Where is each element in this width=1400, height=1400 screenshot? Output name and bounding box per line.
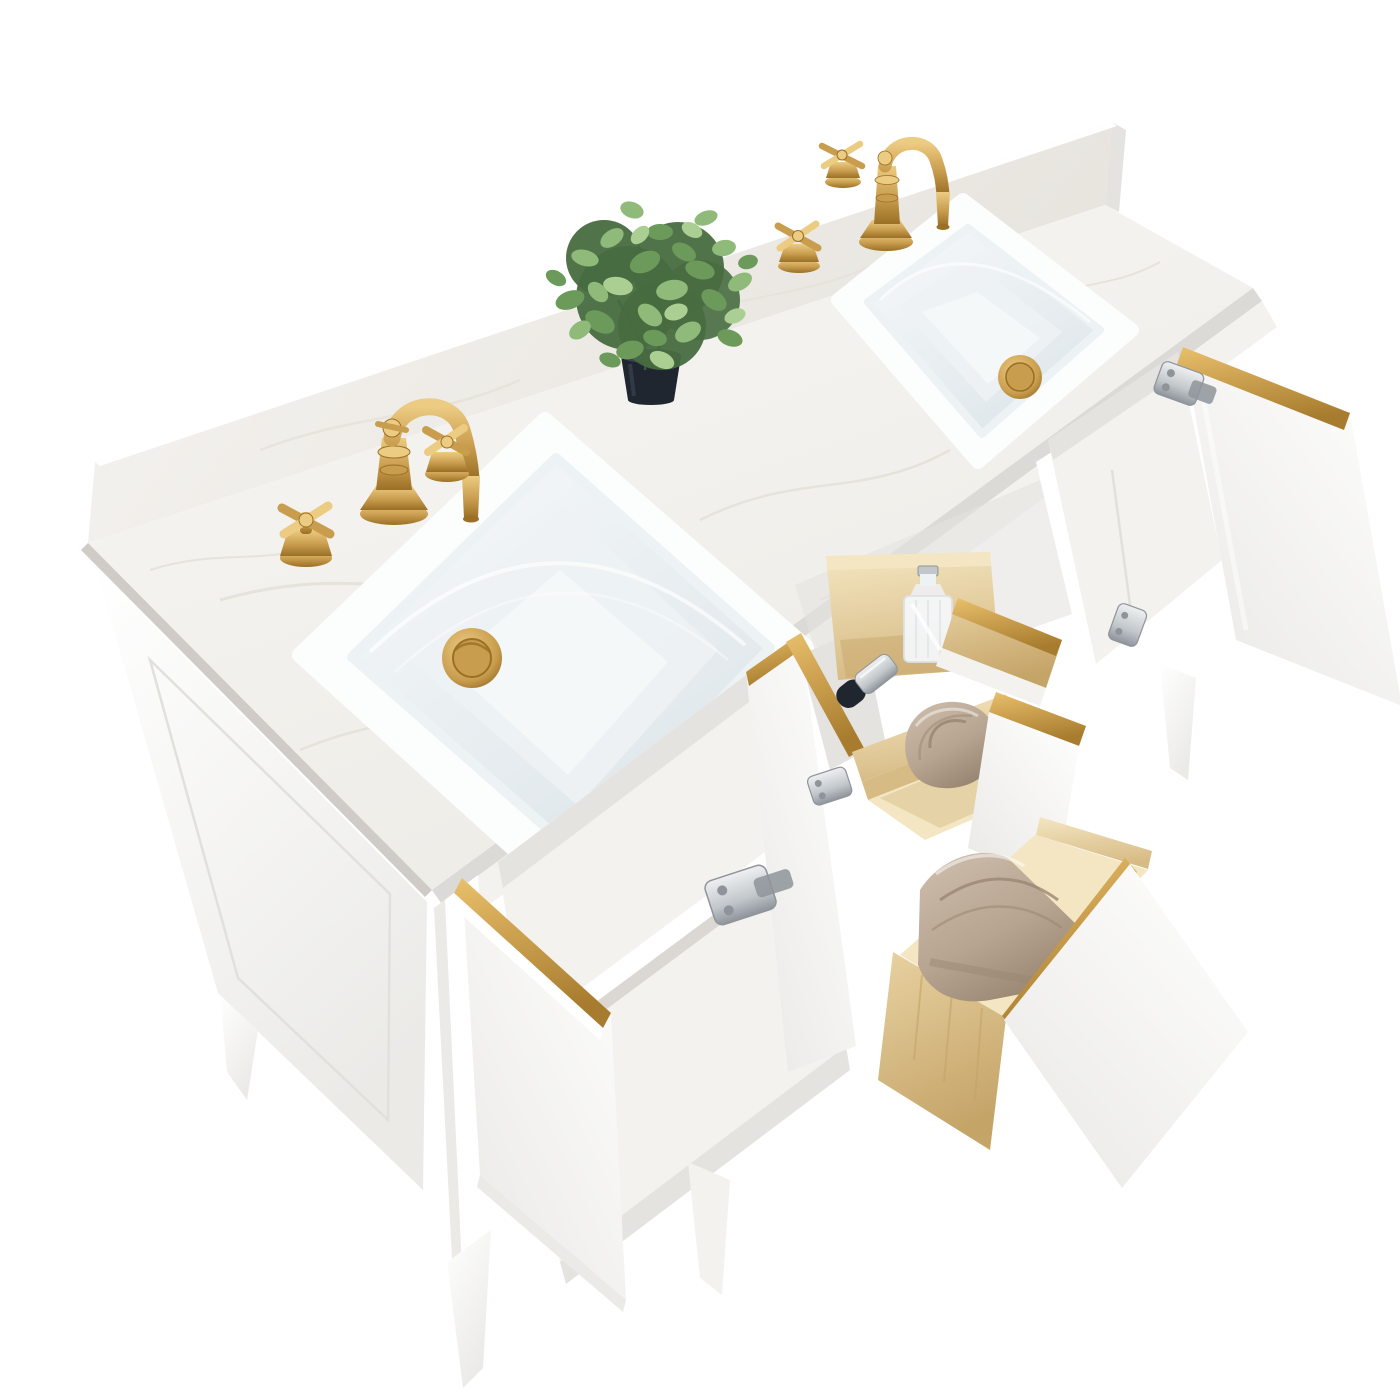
vanity-product-photo: [0, 0, 1400, 1400]
right-faucet-handle-hot: [822, 144, 862, 188]
bottom-drawer: [878, 817, 1248, 1188]
left-sink-drain: [442, 628, 502, 688]
back-right-leg: [1160, 664, 1196, 780]
right-sink-drain: [998, 355, 1042, 399]
center-leg: [688, 1162, 730, 1295]
product-photo-canvas: [0, 0, 1400, 1400]
